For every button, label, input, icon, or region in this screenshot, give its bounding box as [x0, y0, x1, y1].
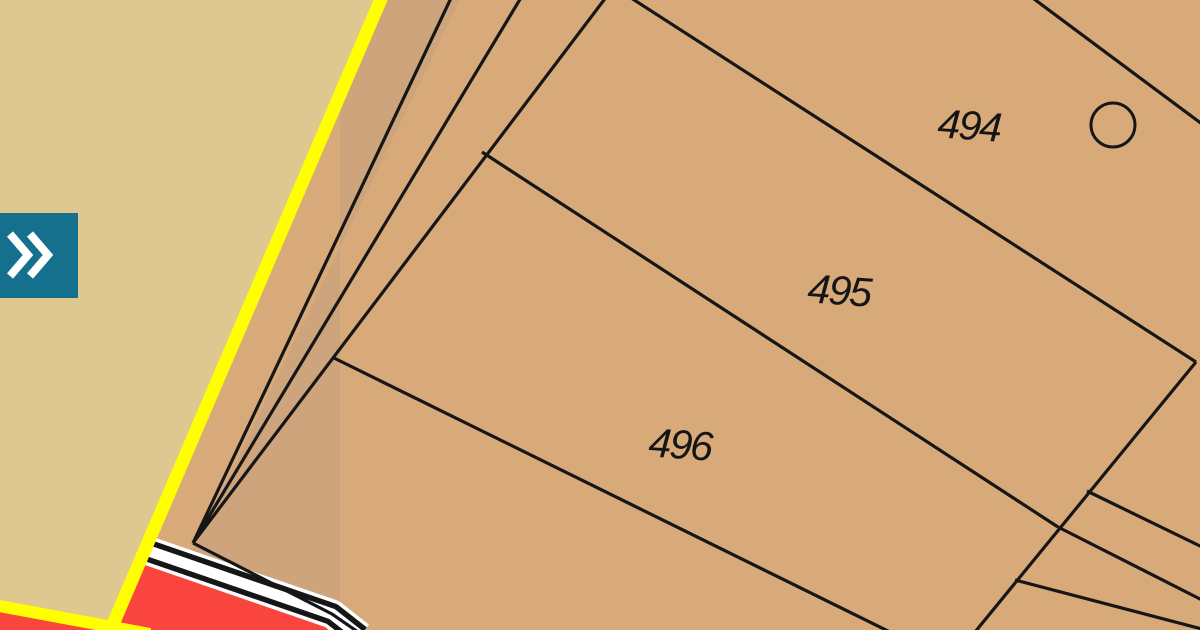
boundary-east-parcel-3	[1015, 580, 1200, 629]
map-canvas[interactable]: 494 495 496	[0, 0, 1200, 630]
double-chevron-right-icon	[0, 213, 78, 298]
expand-sidebar-button[interactable]	[0, 213, 78, 298]
parcel-map-layer	[0, 0, 1200, 630]
parcel-label-496: 496	[647, 419, 713, 470]
boundary-496-south	[334, 358, 890, 630]
survey-circle-symbol	[1091, 103, 1135, 147]
boundary-east-parcel-2	[1058, 527, 1200, 600]
boundary-east-parcel-1	[1087, 491, 1200, 547]
boundary-495-496	[482, 152, 1058, 527]
boundary-northeast	[1030, 0, 1200, 124]
parcel-label-495: 495	[806, 265, 872, 316]
parcel-label-494: 494	[936, 100, 1002, 151]
